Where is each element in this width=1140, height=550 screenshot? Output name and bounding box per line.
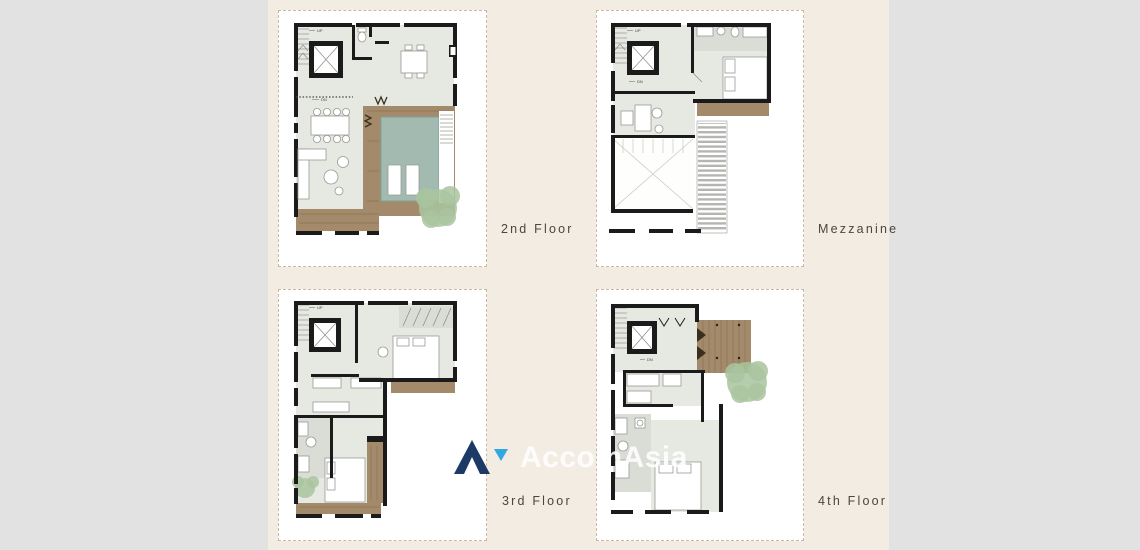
floor-label-4th-floor: 4th Floor [818,494,887,508]
accomasia-logo-icon [452,438,510,476]
closet [399,306,454,328]
up-annotation: UP [635,28,641,33]
bathroom-fixtures [358,28,366,42]
elevator [309,318,341,352]
up-annotation: UP [317,305,323,310]
dining-table [311,108,350,142]
balcony-deck [391,381,455,393]
tree [725,361,768,403]
elevator [627,41,659,75]
bathroom-fixtures [697,27,767,37]
floor-plan-drawing-3rd-floor: UP [279,290,486,540]
pool-lounger [388,165,401,195]
louvered-roof-panel [697,121,727,233]
left-gray-panel [0,0,268,550]
dn-annotation: DN [321,97,327,102]
floor-plan-sheet: UP DN [0,0,1140,550]
watermark: AccomAsia [452,438,688,476]
dn-annotation: DN [647,357,653,362]
floor-plan-card-2nd-floor: UP DN [278,10,487,267]
elevator [627,321,657,354]
floor-plan-drawing-4th-floor: DN [597,290,803,540]
floor-plan-card-mezzanine: UP DN [596,10,804,267]
dn-annotation: DN [637,79,643,84]
floor-plan-drawing-mezzanine: UP DN [597,11,803,266]
watermark-brand-text: AccomAsia [520,441,688,475]
floor-plan-card-4th-floor: DN [596,289,804,541]
up-annotation: UP [317,28,323,33]
floor-label-mezzanine: Mezzanine [818,222,898,236]
void-open-to-below [613,139,693,209]
pool-lounger [406,165,419,195]
floor-plan-drawing-2nd-floor: UP DN [279,11,486,266]
bed [723,57,767,99]
wardrobe [367,436,383,442]
floor-plan-card-3rd-floor: UP [278,289,487,541]
floor-label-2nd-floor: 2nd Floor [501,222,574,236]
tree [416,186,460,228]
right-gray-panel [889,0,1140,550]
elevator [309,41,343,78]
floor-label-3rd-floor: 3rd Floor [502,494,572,508]
balcony-deck [697,103,769,116]
